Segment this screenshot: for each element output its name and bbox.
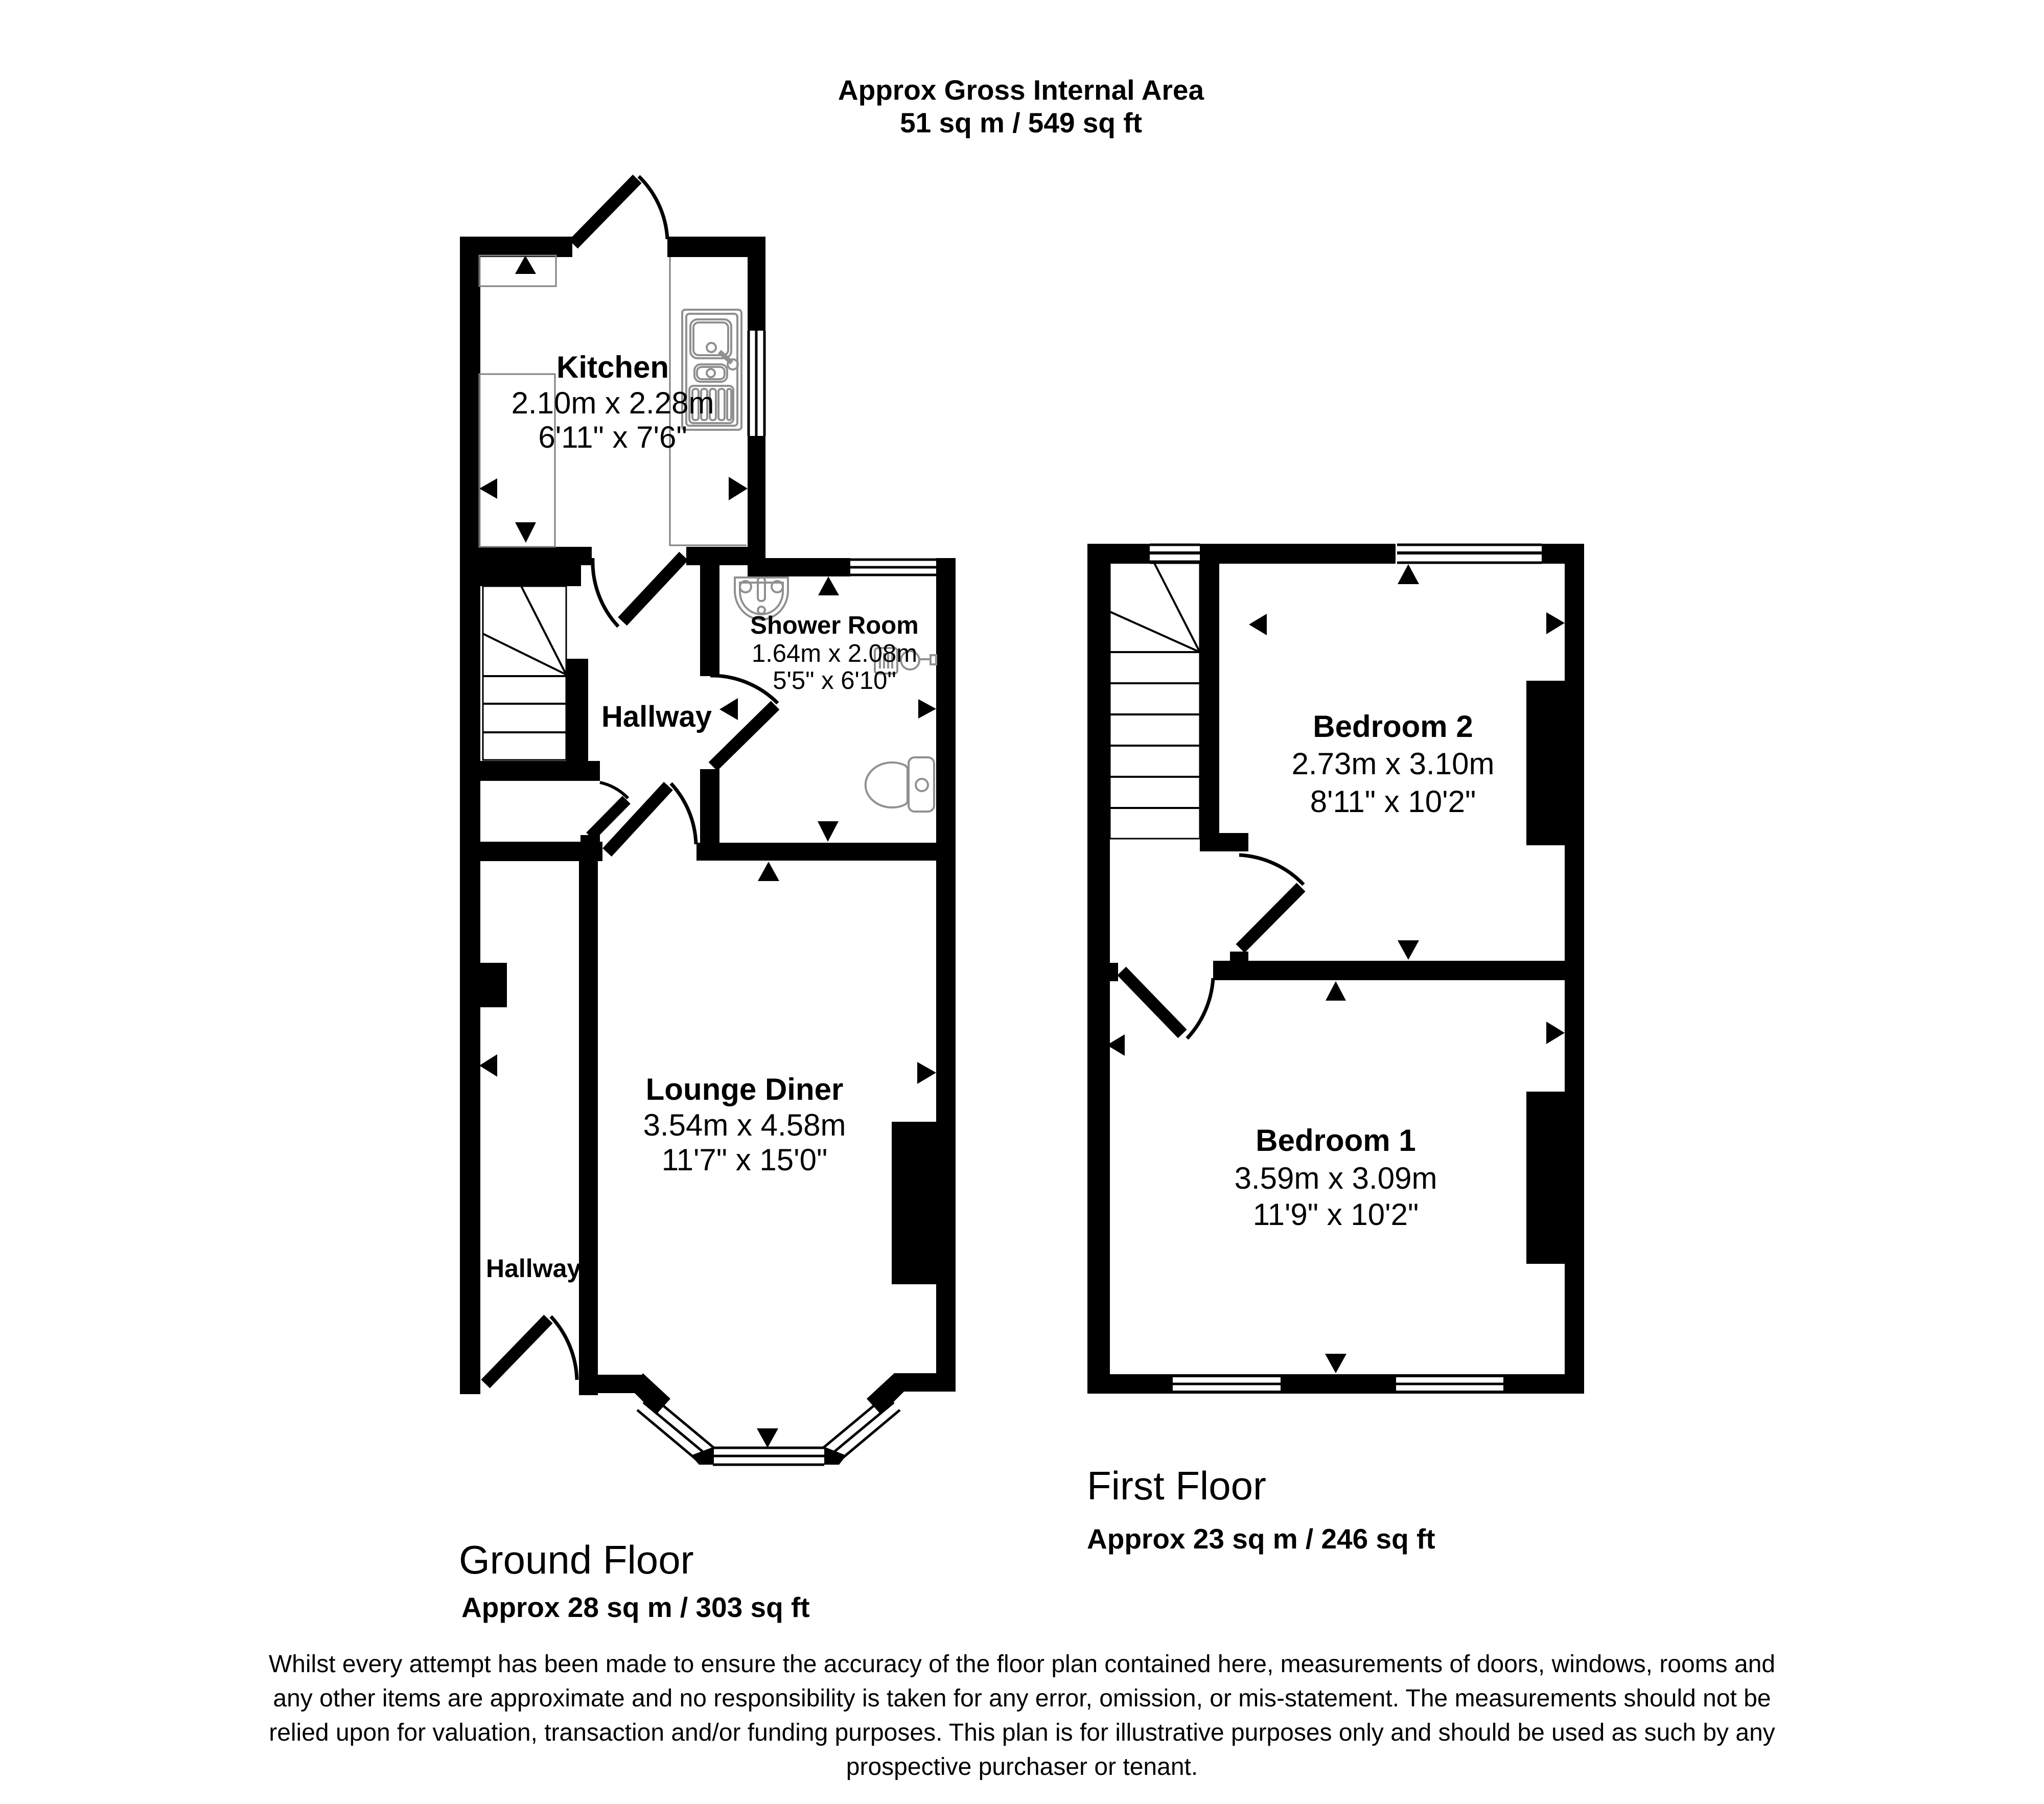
svg-text:Whilst every attempt has been: Whilst every attempt has been made to en…	[269, 1651, 1775, 1678]
svg-text:8'11" x 10'2": 8'11" x 10'2"	[1310, 784, 1476, 819]
svg-text:11'7" x 15'0": 11'7" x 15'0"	[662, 1143, 828, 1177]
svg-text:Shower Room: Shower Room	[750, 612, 918, 639]
svg-text:Hallway: Hallway	[486, 1254, 581, 1283]
svg-text:Hallway: Hallway	[601, 700, 712, 733]
svg-text:Approx 28 sq m / 303 sq ft: Approx 28 sq m / 303 sq ft	[461, 1591, 810, 1623]
svg-text:Bedroom 1: Bedroom 1	[1256, 1123, 1415, 1158]
svg-text:relied upon for valuation, tra: relied upon for valuation, transaction a…	[269, 1719, 1775, 1746]
svg-text:Lounge Diner: Lounge Diner	[646, 1072, 844, 1106]
svg-text:3.54m x 4.58m: 3.54m x 4.58m	[643, 1108, 846, 1142]
svg-text:2.73m x 3.10m: 2.73m x 3.10m	[1292, 747, 1495, 781]
svg-text:prospective purchaser or tenan: prospective purchaser or tenant.	[846, 1753, 1198, 1780]
svg-text:Ground Floor: Ground Floor	[459, 1537, 694, 1582]
svg-text:Kitchen: Kitchen	[556, 350, 669, 384]
svg-text:11'9" x 10'2": 11'9" x 10'2"	[1253, 1197, 1419, 1232]
svg-text:5'5" x 6'10": 5'5" x 6'10"	[773, 667, 896, 695]
svg-text:2.10m x 2.28m: 2.10m x 2.28m	[512, 386, 714, 420]
svg-text:6'11" x 7'6": 6'11" x 7'6"	[538, 420, 687, 454]
svg-text:Approx 23 sq m / 246 sq ft: Approx 23 sq m / 246 sq ft	[1087, 1523, 1435, 1555]
svg-text:Approx Gross Internal Area: Approx Gross Internal Area	[838, 74, 1204, 106]
svg-text:3.59m x 3.09m: 3.59m x 3.09m	[1235, 1161, 1437, 1195]
svg-text:51 sq m / 549 sq ft: 51 sq m / 549 sq ft	[900, 107, 1142, 138]
svg-text:Bedroom 2: Bedroom 2	[1313, 709, 1473, 744]
svg-text:First Floor: First Floor	[1087, 1463, 1266, 1508]
svg-text:1.64m x 2.08m: 1.64m x 2.08m	[752, 640, 917, 667]
svg-text:any other items are approximat: any other items are approximate and no r…	[273, 1685, 1771, 1712]
